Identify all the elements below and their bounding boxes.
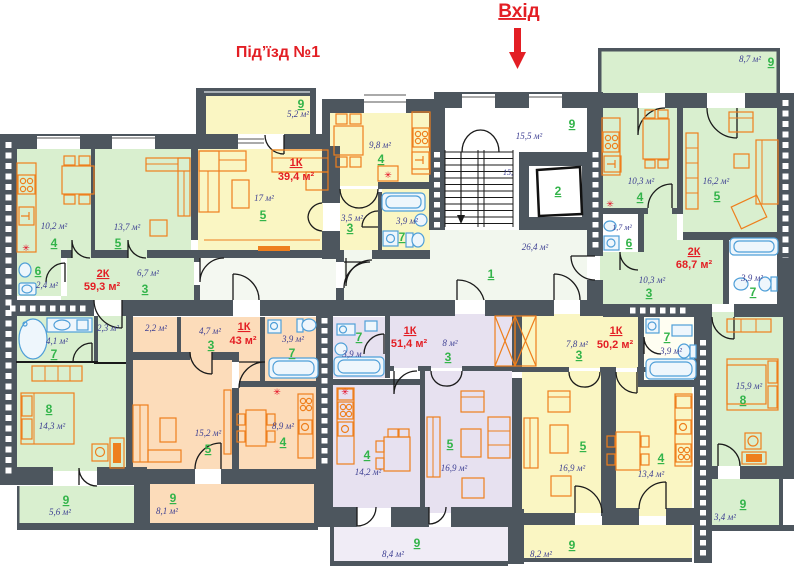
svg-text:8,9 м²: 8,9 м²	[272, 421, 294, 431]
svg-text:4: 4	[378, 152, 385, 166]
svg-text:10,3 м²: 10,3 м²	[639, 275, 666, 285]
svg-text:39,4 м²: 39,4 м²	[278, 171, 315, 183]
svg-text:8: 8	[740, 393, 747, 407]
svg-text:13,4 м²: 13,4 м²	[638, 469, 665, 479]
svg-text:8: 8	[46, 402, 53, 416]
svg-text:3,9 м: 3,9 м	[341, 349, 362, 359]
svg-text:2,4 м²: 2,4 м²	[36, 280, 58, 290]
svg-text:13,7 м²: 13,7 м²	[114, 222, 141, 232]
svg-text:5,2 м²: 5,2 м²	[287, 109, 309, 119]
svg-text:9: 9	[569, 117, 576, 131]
svg-text:4: 4	[364, 448, 371, 462]
svg-text:9: 9	[740, 497, 747, 511]
svg-text:✳: ✳	[384, 170, 392, 180]
svg-text:6: 6	[35, 264, 42, 278]
svg-text:3,9 м²: 3,9 м²	[395, 216, 418, 226]
svg-text:9: 9	[63, 493, 70, 507]
svg-text:3,4 м²: 3,4 м²	[713, 512, 736, 522]
svg-text:7: 7	[664, 330, 671, 344]
svg-text:5: 5	[714, 189, 721, 203]
svg-text:10,2 м²: 10,2 м²	[41, 221, 68, 231]
svg-text:5: 5	[115, 236, 122, 250]
svg-text:✳: ✳	[22, 243, 30, 253]
svg-text:3: 3	[347, 221, 354, 235]
svg-text:14,3 м²: 14,3 м²	[39, 421, 66, 431]
svg-text:17 м²: 17 м²	[254, 193, 274, 203]
svg-text:5: 5	[447, 437, 454, 451]
svg-text:15,2 м²: 15,2 м²	[195, 428, 222, 438]
svg-text:3,9 м²: 3,9 м²	[281, 334, 304, 344]
svg-text:14,2 м²: 14,2 м²	[355, 467, 382, 477]
svg-text:4,7 м²: 4,7 м²	[199, 326, 221, 336]
svg-text:6: 6	[626, 236, 633, 250]
svg-text:8,2 м²: 8,2 м²	[530, 549, 552, 559]
svg-text:2,3 м²: 2,3 м²	[97, 323, 119, 333]
svg-text:Під’їзд №1: Під’їзд №1	[236, 44, 320, 61]
svg-text:9: 9	[170, 491, 177, 505]
svg-text:68,7 м²: 68,7 м²	[676, 259, 713, 271]
svg-text:2К: 2К	[97, 268, 110, 280]
svg-text:10,3 м²: 10,3 м²	[628, 176, 655, 186]
svg-text:1К: 1К	[290, 157, 303, 169]
svg-text:7: 7	[750, 285, 757, 299]
svg-text:4: 4	[658, 451, 665, 465]
svg-text:5: 5	[580, 439, 587, 453]
svg-text:3,9 м²: 3,9 м²	[659, 346, 682, 356]
svg-text:9: 9	[569, 538, 576, 552]
svg-text:1: 1	[488, 267, 495, 281]
svg-text:50,2 м²: 50,2 м²	[597, 339, 634, 351]
svg-text:16,9 м²: 16,9 м²	[441, 463, 468, 473]
svg-text:15,: 15,	[503, 168, 513, 177]
svg-text:51,4 м²: 51,4 м²	[391, 338, 428, 350]
svg-text:2: 2	[555, 184, 562, 198]
svg-text:2,2 м²: 2,2 м²	[145, 323, 167, 333]
svg-text:9,8 м²: 9,8 м²	[369, 140, 391, 150]
svg-text:7: 7	[399, 230, 406, 244]
svg-text:3: 3	[208, 338, 215, 352]
svg-text:3: 3	[576, 348, 583, 362]
svg-text:2К: 2К	[688, 246, 701, 258]
svg-text:26,4 м²: 26,4 м²	[522, 242, 549, 252]
svg-text:Вхід: Вхід	[498, 1, 539, 22]
svg-text:4,1 м²: 4,1 м²	[46, 336, 68, 346]
svg-text:8,7 м²: 8,7 м²	[739, 54, 761, 64]
svg-text:4: 4	[280, 435, 287, 449]
svg-text:15,5 м²: 15,5 м²	[516, 131, 543, 141]
svg-text:8,1 м²: 8,1 м²	[156, 506, 178, 516]
svg-text:1,7 м²: 1,7 м²	[612, 223, 632, 232]
svg-text:6,7 м²: 6,7 м²	[137, 268, 159, 278]
svg-text:7: 7	[51, 347, 58, 361]
svg-text:1К: 1К	[238, 321, 251, 333]
svg-text:5: 5	[205, 442, 212, 456]
svg-text:3,9 м²: 3,9 м²	[740, 273, 763, 283]
svg-text:3: 3	[142, 282, 149, 296]
svg-text:16,2 м²: 16,2 м²	[703, 176, 730, 186]
svg-text:4: 4	[51, 236, 58, 250]
svg-text:7: 7	[289, 346, 296, 360]
svg-text:✳: ✳	[606, 199, 614, 209]
svg-text:✳: ✳	[273, 387, 281, 397]
svg-text:16,9 м²: 16,9 м²	[559, 463, 586, 473]
svg-text:59,3 м²: 59,3 м²	[84, 281, 121, 293]
svg-text:3: 3	[445, 350, 452, 364]
svg-text:43 м²: 43 м²	[229, 335, 256, 347]
svg-text:✳: ✳	[341, 387, 349, 397]
svg-text:5: 5	[260, 208, 267, 222]
svg-text:15,9 м²: 15,9 м²	[736, 381, 763, 391]
svg-text:7: 7	[356, 330, 363, 344]
svg-text:8,4 м²: 8,4 м²	[382, 549, 404, 559]
svg-text:4: 4	[637, 190, 644, 204]
svg-text:1К: 1К	[404, 325, 417, 337]
svg-text:8 м²: 8 м²	[442, 338, 457, 348]
svg-text:5,6 м²: 5,6 м²	[49, 507, 71, 517]
svg-text:3: 3	[646, 286, 653, 300]
svg-text:1К: 1К	[610, 325, 623, 337]
svg-text:9: 9	[768, 55, 775, 69]
svg-text:9: 9	[414, 536, 421, 550]
